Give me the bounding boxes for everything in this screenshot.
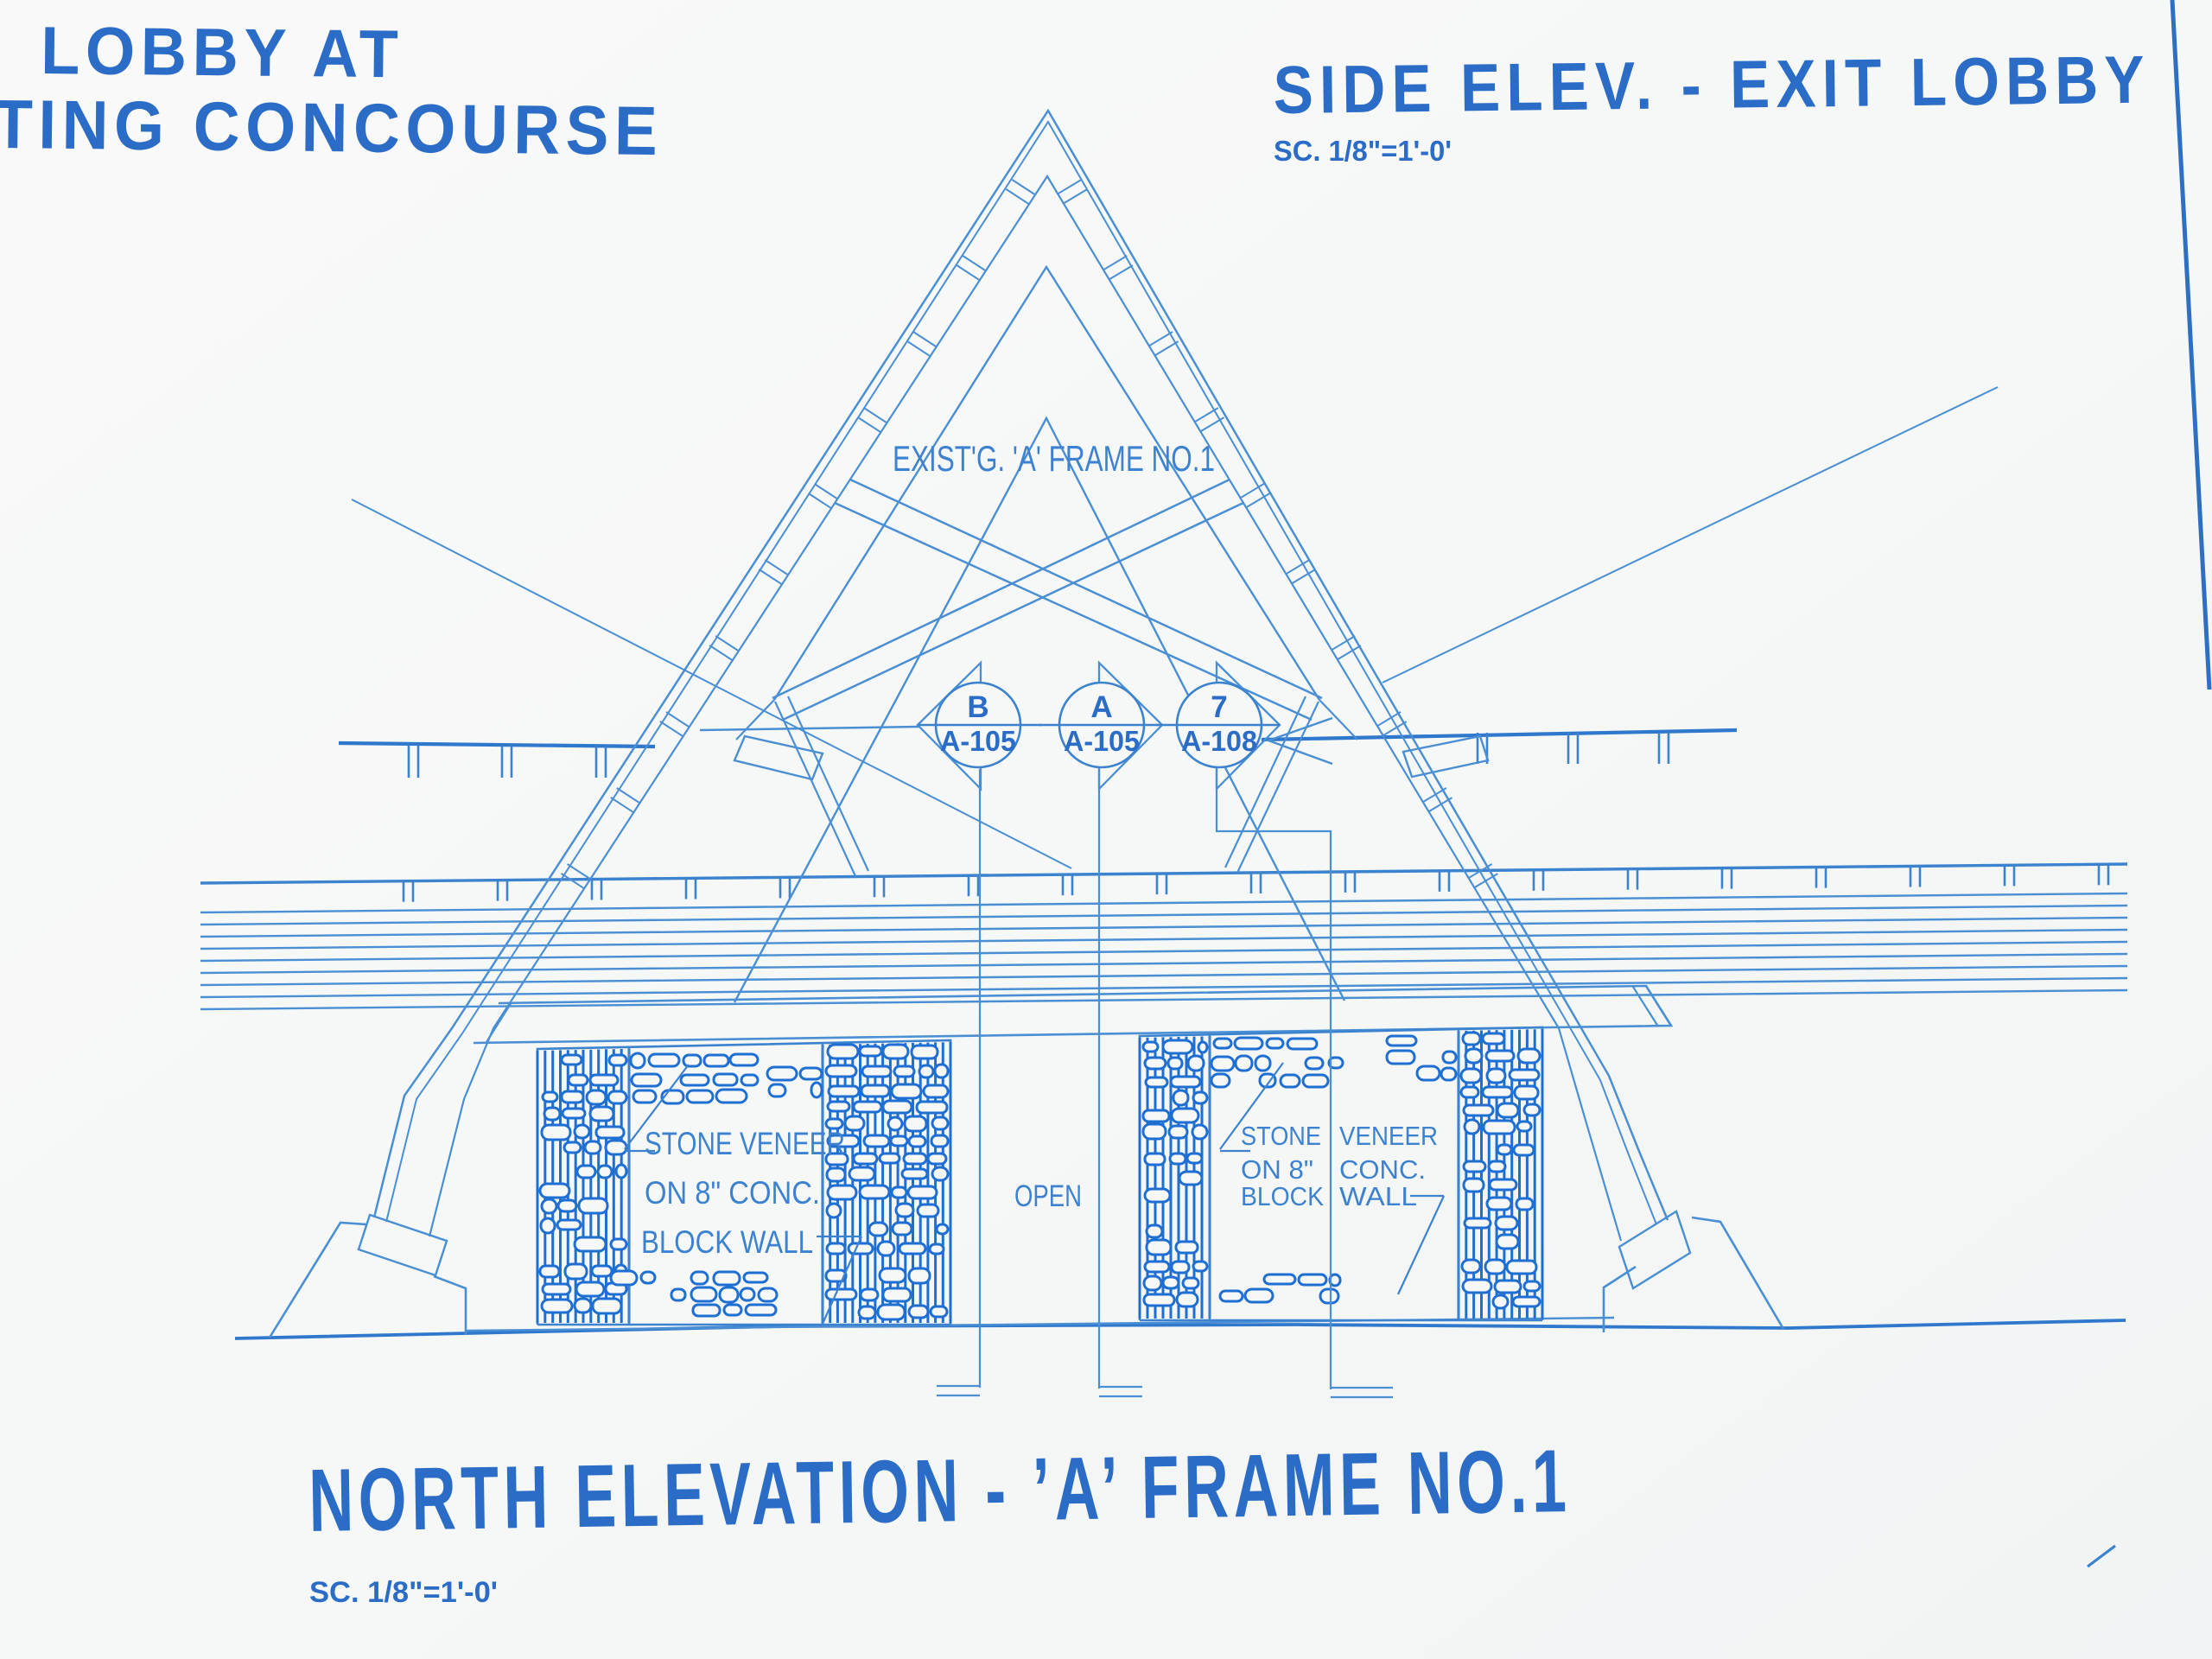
svg-text:WALL: WALL (1339, 1181, 1417, 1211)
svg-text:ON 8": ON 8" (1241, 1154, 1313, 1185)
svg-text:A-105: A-105 (1064, 725, 1140, 757)
svg-text:A: A (1090, 690, 1112, 724)
svg-text:NORTH ELEVATION - ’A’ FRAM: NORTH ELEVATION - ’A’ FRAME NO.1 (308, 1431, 1573, 1550)
svg-text:ON 8" CONC.: ON 8" CONC. (645, 1175, 820, 1211)
svg-text:A-108: A-108 (1181, 725, 1257, 757)
svg-text:VENEER: VENEER (1339, 1121, 1438, 1151)
svg-text:A-105: A-105 (940, 725, 1016, 757)
svg-text:LOBBY AT: LOBBY AT (41, 12, 404, 92)
svg-text:B: B (967, 690, 988, 724)
svg-text:SC. 1/8"=1'-0': SC. 1/8"=1'-0' (309, 1576, 498, 1609)
svg-text:SIDE ELEV. - EXIT LOBBY: SIDE ELEV. - EXIT LOBBY (1273, 41, 2151, 128)
svg-text:BLOCK: BLOCK (1241, 1181, 1324, 1211)
svg-text:EXIST'G. 'A' FRAME NO.1: EXIST'G. 'A' FRAME NO.1 (893, 438, 1215, 479)
svg-text:SC. 1/8"=1'-0': SC. 1/8"=1'-0' (1274, 135, 1452, 167)
svg-text:OPEN: OPEN (1014, 1179, 1082, 1213)
svg-text:STONE: STONE (1241, 1121, 1321, 1151)
svg-text:TING CONCOURSE: TING CONCOURSE (0, 86, 664, 169)
svg-text:7: 7 (1211, 690, 1227, 724)
svg-text:STONE VENEER: STONE VENEER (645, 1126, 845, 1161)
svg-text:CONC.: CONC. (1339, 1154, 1426, 1185)
svg-text:BLOCK WALL: BLOCK WALL (641, 1224, 813, 1260)
